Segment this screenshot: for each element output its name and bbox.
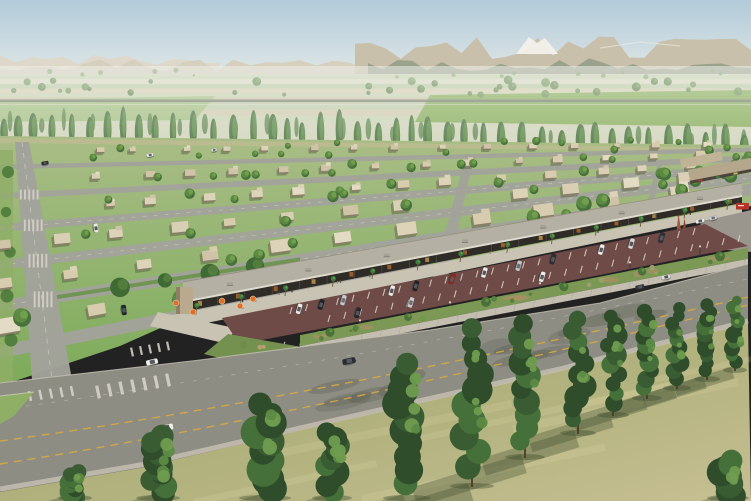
aerial-development-rendering	[0, 0, 751, 501]
rendering-canvas	[0, 0, 751, 501]
